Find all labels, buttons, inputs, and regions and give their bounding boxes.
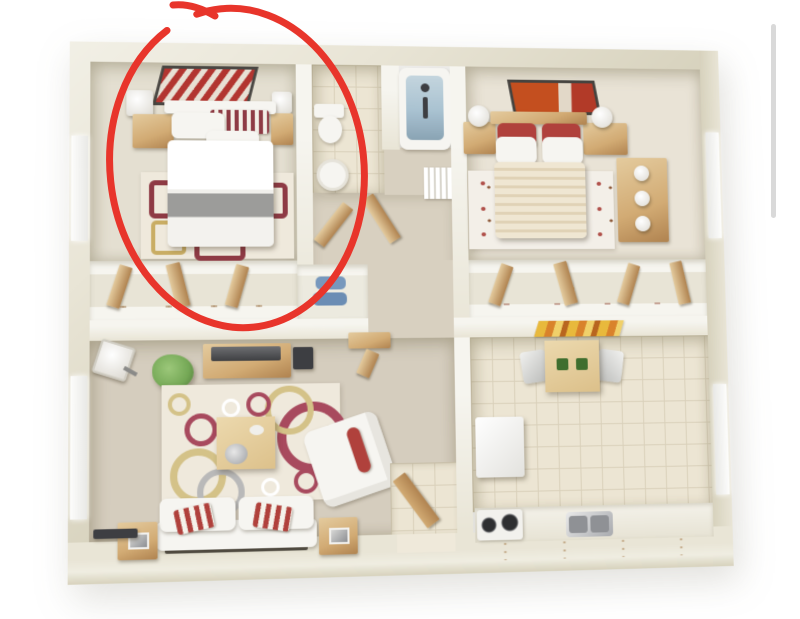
bedroom-1-window (71, 136, 88, 241)
bed1-duvet (167, 140, 273, 247)
sofa (156, 493, 317, 555)
table-decor (249, 425, 263, 435)
rug-ring-white-1 (222, 399, 241, 418)
side-table-right-frame (329, 527, 350, 544)
bed2-pillow-1 (496, 137, 537, 164)
sofa-striped-pillow-right (252, 502, 293, 532)
bed2-striped-duvet (494, 162, 587, 238)
bedroom-1-nightstand-right (271, 113, 293, 145)
placemat-green-1 (557, 358, 569, 370)
floor-lamp (94, 343, 136, 385)
kitchen-wall-art (534, 320, 624, 337)
tv-flatscreen (211, 346, 281, 361)
divider-wall-left (90, 318, 369, 341)
bedroom-1-art-canvas (156, 69, 255, 104)
rug-ring-gold-3 (168, 393, 191, 416)
screenshot-photo-viewer: { "image": { "kind": "3d-floor-plan-rend… (0, 0, 800, 619)
laundry-closet (297, 264, 368, 318)
dining-table (544, 340, 600, 392)
sink-basin-left (569, 516, 588, 534)
silver-tray (225, 443, 248, 464)
bedroom-2-dresser (616, 158, 669, 242)
laundry-item-blue-2 (313, 292, 347, 305)
wall-bath-tub (381, 65, 400, 149)
speaker (293, 347, 313, 369)
tv-console (203, 343, 291, 379)
floor-plan (68, 41, 738, 584)
floor-lamp-shade (91, 338, 136, 382)
rug-ring-crimson-2 (184, 413, 217, 446)
bedroom-1-bed (167, 100, 273, 246)
bedroom-2-nightstand-right (583, 123, 628, 155)
coffee-table (217, 416, 276, 469)
linen-shelves (424, 167, 452, 199)
closet2-shelf-items (481, 298, 694, 309)
toilet (314, 104, 346, 146)
sink-basin-right (590, 515, 609, 533)
kitchen-sink (566, 511, 613, 537)
shower-fixture (421, 83, 430, 92)
closet1-shelf-items (100, 301, 285, 312)
bedroom-1-lamp-left (126, 90, 153, 116)
bathtub (399, 68, 451, 150)
dresser-knob-3 (635, 216, 651, 232)
bedroom-1-closet (90, 261, 298, 321)
bedroom-2-art-canvas (510, 83, 597, 113)
scrollbar-thumb[interactable] (771, 24, 776, 218)
bedroom-2-lamp-left (468, 105, 490, 127)
refrigerator (475, 417, 524, 478)
dark-wall-shelf (93, 528, 137, 538)
side-table-left (118, 522, 158, 561)
front-door-threshold (397, 533, 456, 553)
bedroom-2-wall-art (507, 80, 601, 116)
bedroom-2-lamp-right (591, 106, 612, 127)
laundry-item-blue-1 (316, 276, 346, 289)
dining-chair-right (596, 348, 624, 383)
toilet-bowl (318, 116, 342, 144)
dresser-knob-2 (634, 191, 650, 207)
stove (477, 509, 523, 541)
bed2-pillow-2 (542, 137, 583, 164)
placemat-green-2 (576, 358, 588, 370)
bathroom-sink (316, 159, 348, 191)
side-table-right (319, 517, 358, 555)
desk (348, 332, 390, 348)
hallway-lower-floor (368, 260, 455, 338)
bedroom-2-bed (493, 111, 586, 238)
tub-faucet (423, 97, 428, 118)
dresser-knob-1 (634, 166, 650, 182)
bedroom-2-closet (469, 259, 708, 317)
living-room-window (70, 376, 87, 520)
